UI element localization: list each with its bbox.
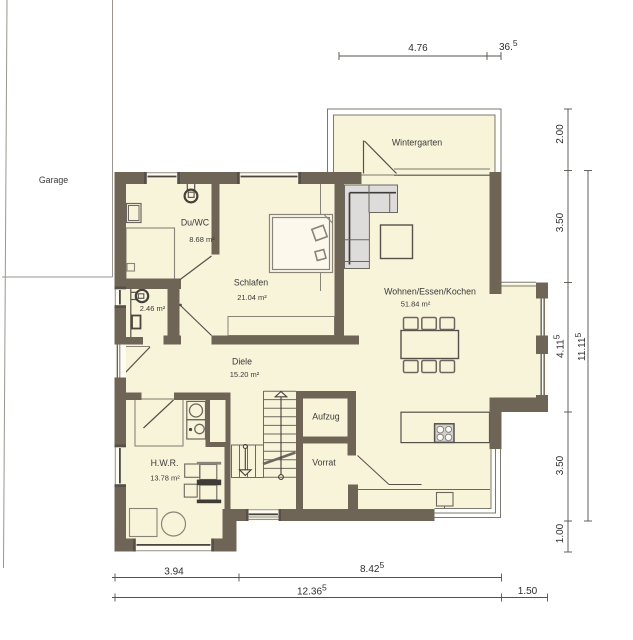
svg-text:3.94: 3.94 xyxy=(164,567,184,578)
svg-text:Diele: Diele xyxy=(232,357,252,367)
svg-text:H.W.R.: H.W.R. xyxy=(151,458,179,468)
svg-text:21.04 m²: 21.04 m² xyxy=(237,293,267,302)
svg-text:Wohnen/Essen/Kochen: Wohnen/Essen/Kochen xyxy=(384,287,476,297)
svg-text:13.78 m²: 13.78 m² xyxy=(150,474,180,483)
svg-text:Schlafen: Schlafen xyxy=(234,278,268,288)
svg-text:Du/WC: Du/WC xyxy=(181,218,210,228)
svg-text:8.68 m²: 8.68 m² xyxy=(189,235,215,244)
svg-text:51.84 m²: 51.84 m² xyxy=(401,300,431,309)
svg-text:2.46 m²: 2.46 m² xyxy=(140,304,166,313)
svg-text:4.76: 4.76 xyxy=(408,43,428,54)
svg-text:Aufzug: Aufzug xyxy=(312,412,339,422)
svg-text:3.50: 3.50 xyxy=(555,212,566,232)
svg-text:Vorrat: Vorrat xyxy=(312,458,336,468)
svg-text:Garage: Garage xyxy=(39,175,68,185)
svg-text:1.50: 1.50 xyxy=(518,586,538,597)
svg-text:3.50: 3.50 xyxy=(555,455,566,475)
svg-text:2.00: 2.00 xyxy=(555,124,566,144)
svg-text:15.20 m²: 15.20 m² xyxy=(230,370,260,379)
svg-text:Wintergarten: Wintergarten xyxy=(392,138,442,148)
svg-text:1.00: 1.00 xyxy=(555,523,566,543)
